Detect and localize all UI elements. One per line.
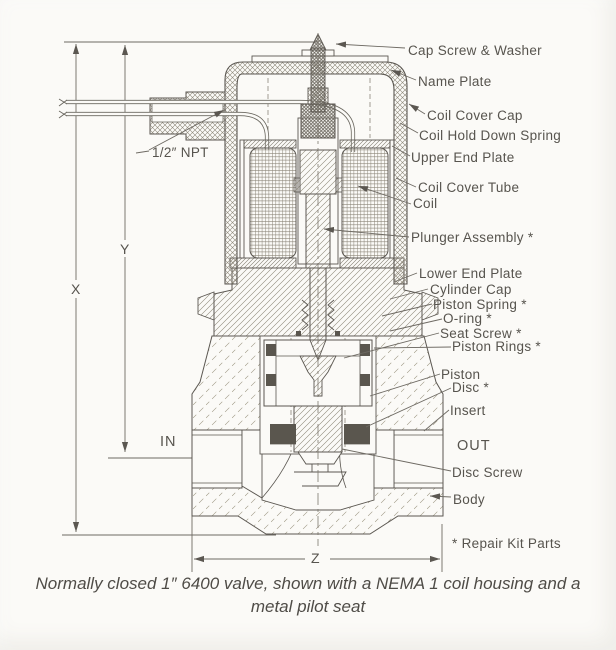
- label-name-plate: Name Plate: [418, 74, 492, 90]
- inlet-port-bore: [192, 430, 242, 488]
- label-disc: Disc *: [452, 380, 489, 396]
- label-cap-screw-washer: Cap Screw & Washer: [408, 43, 542, 59]
- disc-screw-part: [298, 452, 342, 464]
- dimension-y: Y: [120, 241, 129, 257]
- label-insert: Insert: [450, 403, 486, 419]
- outlet-port-bore: [394, 430, 443, 488]
- o-ring-part: [296, 331, 301, 336]
- label-coil-cover-cap: Coil Cover Cap: [427, 108, 523, 124]
- figure-caption: Normally closed 1″ 6400 valve, shown wit…: [0, 572, 616, 618]
- dimension-x: X: [71, 281, 80, 297]
- label-upper-end-plate: Upper End Plate: [411, 150, 515, 166]
- caption-line-2: metal pilot seat: [0, 595, 616, 618]
- label-coil-cover-tube: Coil Cover Tube: [418, 180, 519, 196]
- label-in-port: IN: [160, 434, 177, 450]
- label-repair-kit-footnote: * Repair Kit Parts: [452, 536, 561, 552]
- label-plunger-assembly: Plunger Assembly *: [411, 230, 533, 246]
- label-coil: Coil: [413, 196, 437, 212]
- valve-cross-section-drawing: [0, 0, 616, 650]
- label-lower-end-plate: Lower End Plate: [419, 266, 523, 282]
- caption-line-1: Normally closed 1″ 6400 valve, shown wit…: [0, 572, 616, 595]
- label-conduit-npt: 1/2″ NPT: [152, 145, 209, 161]
- dimension-z: Z: [311, 550, 320, 566]
- label-piston-rings: Piston Rings *: [452, 339, 541, 355]
- label-cylinder-cap: Cylinder Cap: [430, 282, 512, 298]
- label-disc-screw: Disc Screw: [452, 465, 523, 481]
- label-o-ring: O-ring *: [443, 311, 492, 327]
- label-out-port: OUT: [457, 438, 491, 454]
- label-coil-hold-down-spring: Coil Hold Down Spring: [419, 128, 561, 144]
- scanned-diagram-page: Cap Screw & Washer Name Plate Coil Cover…: [0, 0, 616, 650]
- label-body: Body: [453, 492, 485, 508]
